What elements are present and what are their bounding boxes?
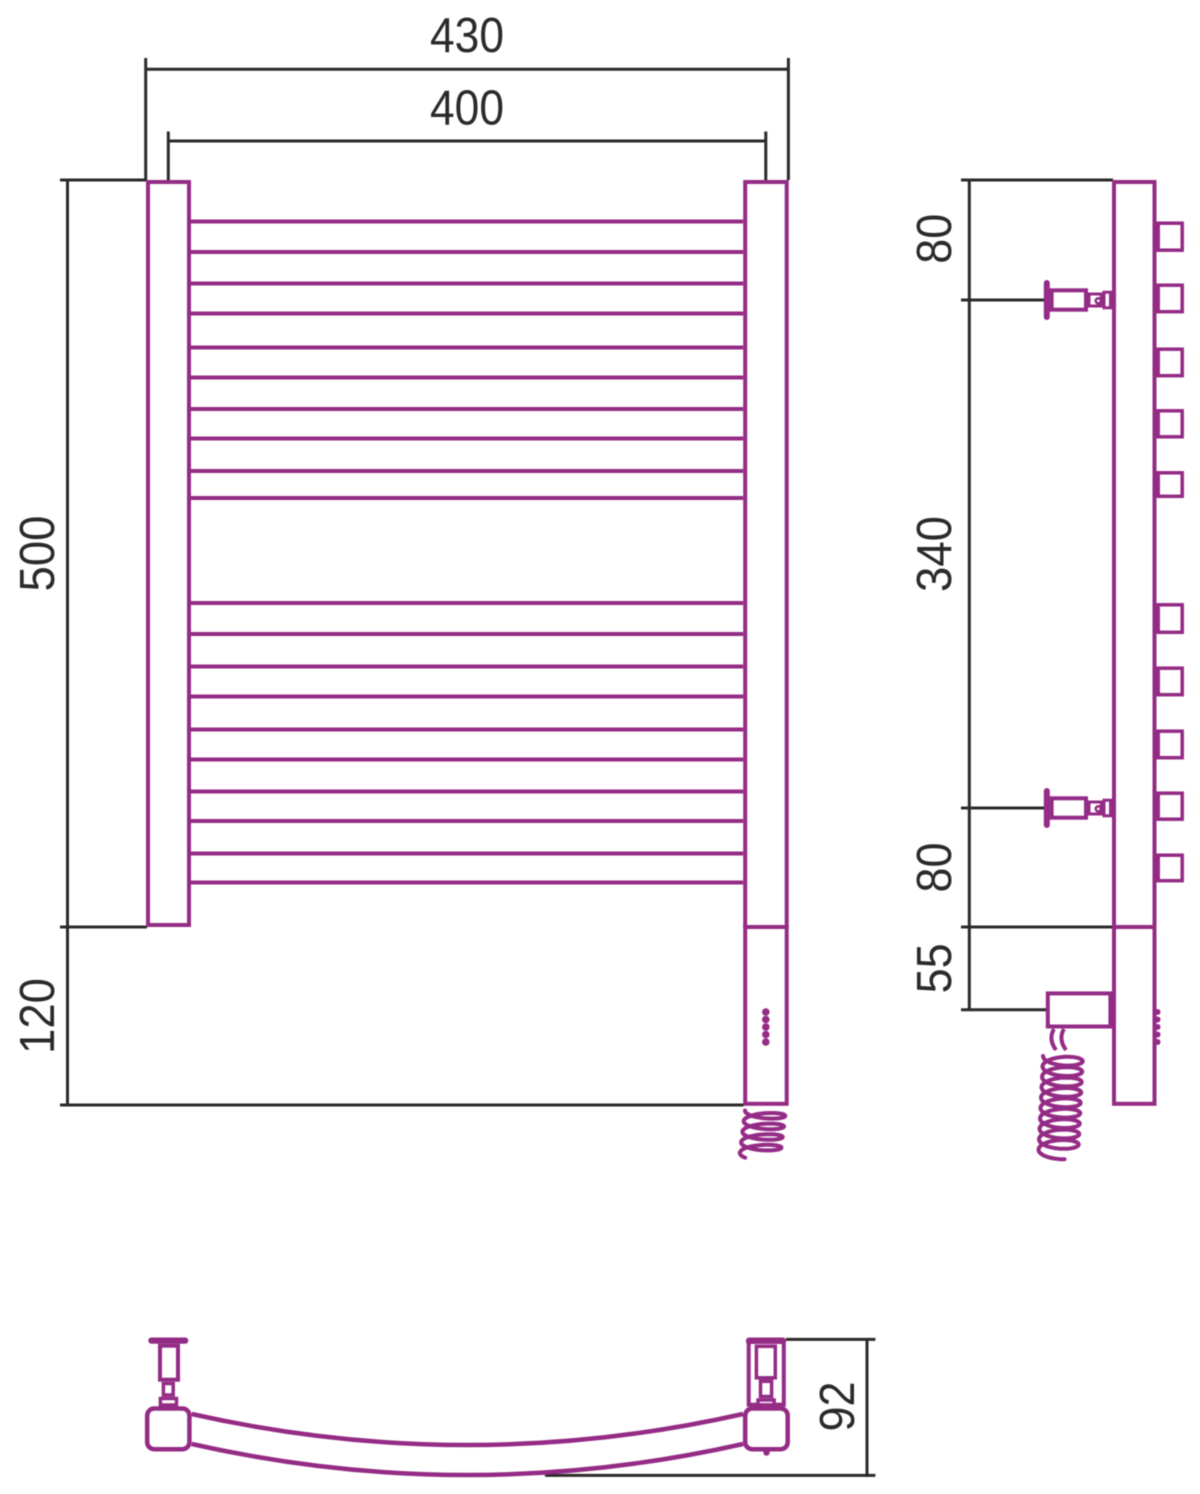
svg-text:400: 400 bbox=[430, 82, 504, 136]
svg-text:80: 80 bbox=[908, 214, 962, 264]
svg-text:92: 92 bbox=[811, 1382, 865, 1432]
svg-text:55: 55 bbox=[908, 943, 962, 993]
svg-text:500: 500 bbox=[11, 516, 65, 592]
svg-text:120: 120 bbox=[11, 978, 65, 1054]
svg-text:430: 430 bbox=[430, 9, 504, 63]
svg-text:80: 80 bbox=[908, 843, 962, 893]
svg-text:340: 340 bbox=[908, 516, 962, 592]
